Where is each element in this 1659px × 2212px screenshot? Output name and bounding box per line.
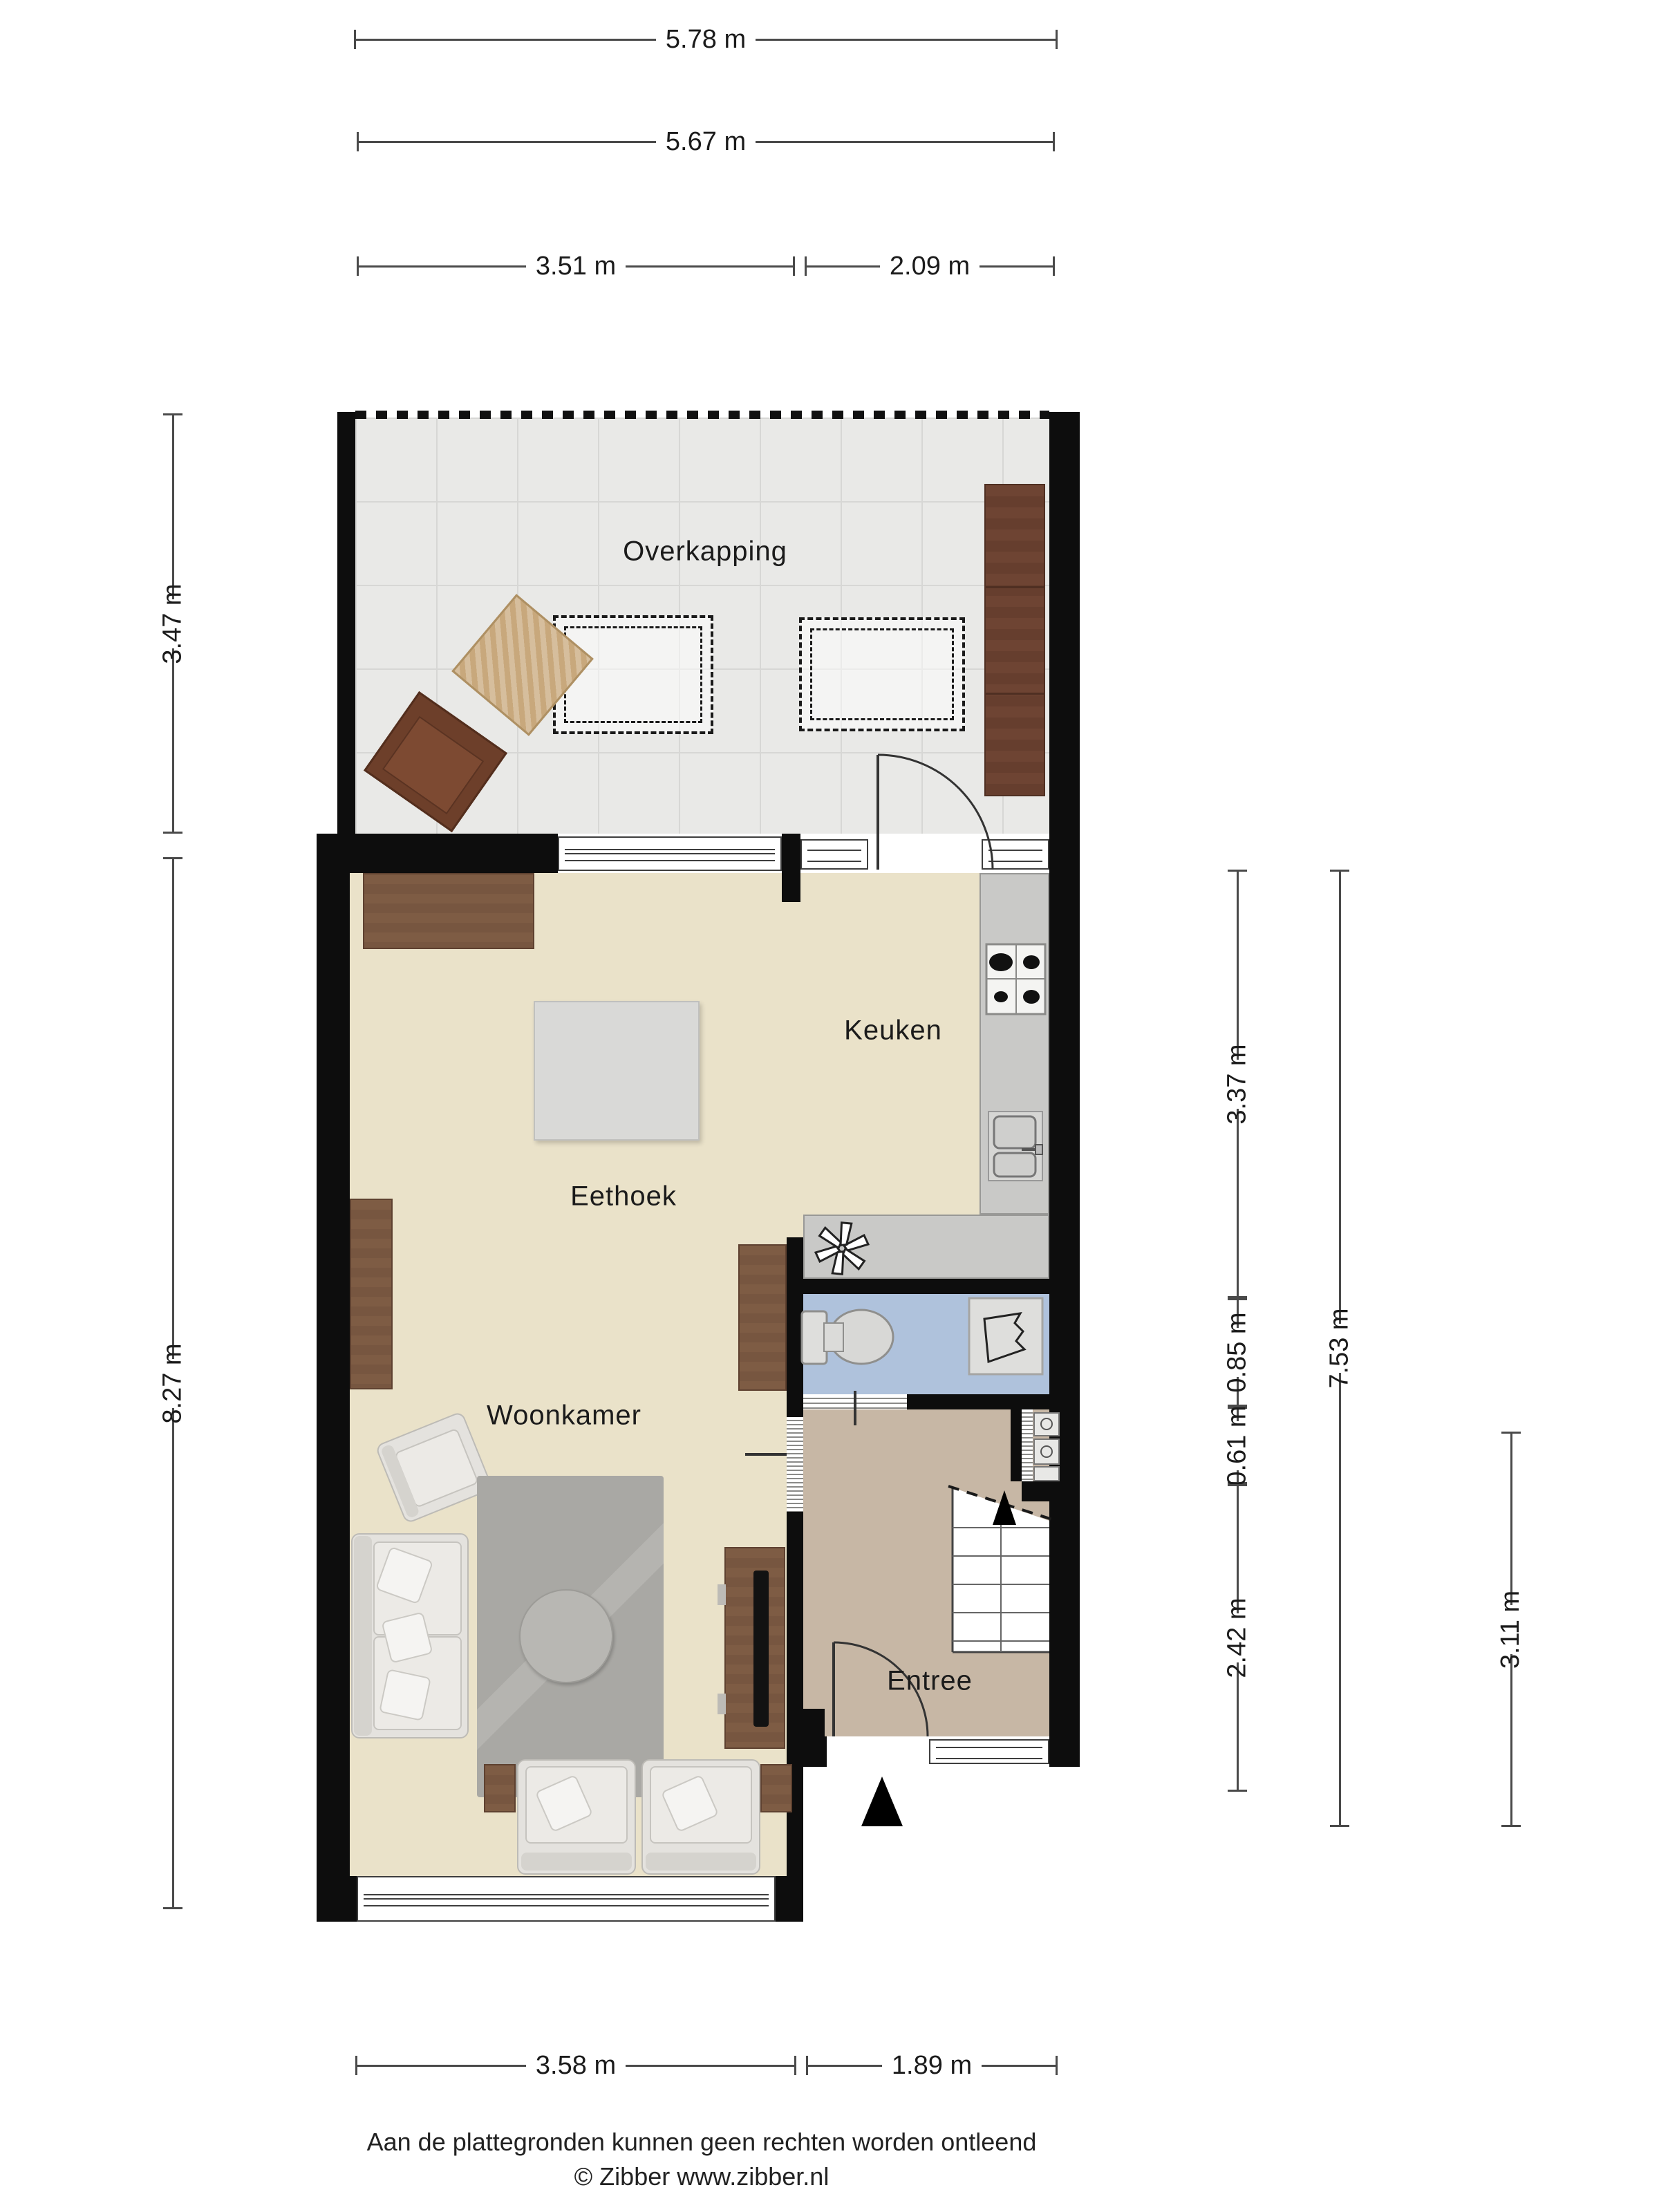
- dimension-top-right-part: 2.09 m: [805, 252, 1055, 280]
- dimension-right-total: 7.53 m: [1326, 870, 1353, 1827]
- meter-boxes-icon: [1034, 1413, 1059, 1481]
- copyright-text: © Zibber www.zibber.nl: [356, 2162, 1047, 2191]
- sink-icon: [988, 1112, 1042, 1181]
- dimension-top-inner: 5.67 m: [357, 128, 1055, 156]
- floorplan-page: Overkapping Keuken Eethoek Woonkamer Ent…: [0, 0, 1659, 2212]
- staircase-icon: [948, 1486, 1052, 1652]
- room-label-overkapping: Overkapping: [623, 536, 787, 568]
- dimension-bottom-entree: 1.89 m: [806, 2052, 1058, 2079]
- dimension-top-left-part: 3.51 m: [357, 252, 795, 280]
- dimension-bottom-living: 3.58 m: [355, 2052, 796, 2079]
- plan-linework: [0, 0, 1659, 2212]
- room-label-eethoek: Eethoek: [570, 1181, 677, 1212]
- room-label-woonkamer: Woonkamer: [487, 1400, 641, 1432]
- dimension-left-overkapping: 3.47 m: [159, 413, 187, 834]
- dimension-right-entree: 2.42 m: [1224, 1484, 1251, 1792]
- dimension-left-house: 8.27 m: [159, 857, 187, 1909]
- dimension-top-total: 5.78 m: [354, 26, 1058, 53]
- back-door-icon: [878, 755, 993, 870]
- entrance-arrow-icon: [861, 1777, 903, 1826]
- stove-icon: [986, 944, 1045, 1014]
- room-label-entree: Entree: [887, 1666, 973, 1697]
- room-label-keuken: Keuken: [844, 1015, 942, 1047]
- hand-basin-icon: [969, 1298, 1042, 1374]
- toilet-icon: [802, 1310, 893, 1364]
- disclaimer-text: Aan de plattegronden kunnen geen rechten…: [356, 2128, 1047, 2157]
- ventilation-fan-icon: [816, 1219, 868, 1278]
- dimension-right-toilet: 0.85 m: [1224, 1298, 1251, 1407]
- dimension-right-hall-depth: 3.11 m: [1497, 1432, 1525, 1827]
- dimension-right-kitchen: 3.37 m: [1224, 870, 1251, 1298]
- dimension-right-meter: 0.61 m: [1224, 1407, 1251, 1484]
